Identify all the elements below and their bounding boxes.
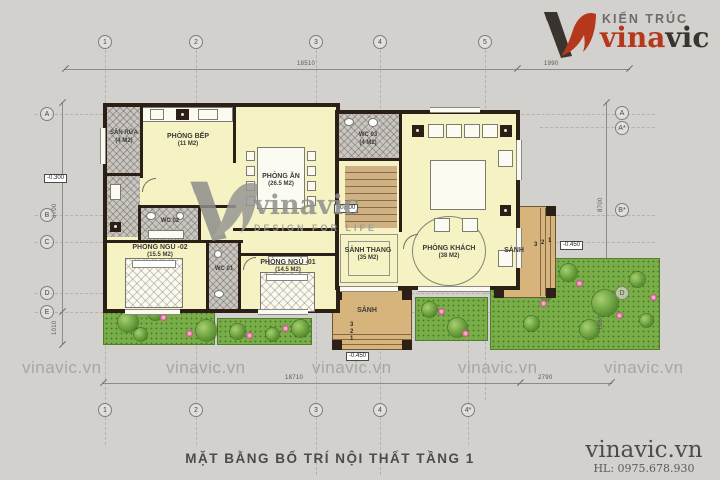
- flower-icon: [282, 325, 289, 332]
- drawing-title: MẶT BẰNG BỐ TRÍ NỘI THẤT TẦNG 1: [130, 451, 530, 466]
- side-table: [500, 205, 511, 216]
- grid-bubble-left-C: C: [40, 235, 54, 249]
- watermark-tile: vinavic.vn: [166, 358, 246, 378]
- room-name: SẢNH THANG: [345, 247, 392, 254]
- step-number: 1: [548, 238, 551, 244]
- pillow: [132, 260, 176, 268]
- sofa-seat: [464, 124, 480, 138]
- column-pier: [546, 288, 556, 298]
- vinavic-logo: KIẾN TRÚC vinavic: [540, 4, 718, 62]
- room-name: PHÒNG KHÁCH: [423, 245, 476, 252]
- sink-icon: [344, 118, 354, 126]
- wardrobe: [148, 230, 184, 239]
- column-pier: [546, 206, 556, 216]
- window: [430, 107, 480, 113]
- watermark-tile: vinavic.vn: [22, 358, 102, 378]
- room-name: PHÒNG ĂN: [262, 173, 300, 180]
- side-table: [412, 125, 424, 137]
- dim-bottom-right: 2790: [538, 375, 553, 381]
- sink-icon: [176, 109, 189, 120]
- dim-left-lower: 1010: [52, 320, 58, 335]
- room-label-bep: PHÒNG BẾP (11 M2): [150, 132, 226, 149]
- grid-bubble-bottom-2: 2: [189, 403, 203, 417]
- room-label-wc02: WC 02: [150, 218, 190, 226]
- room-label-ngu01: PHÒNG NGỦ -01 (14.5 M2): [246, 258, 330, 275]
- flower-icon: [246, 332, 253, 339]
- chair-icon: [246, 151, 255, 161]
- flower-icon: [186, 330, 193, 337]
- room-name: SẢNH: [504, 247, 524, 254]
- step-number: 3: [350, 322, 353, 328]
- watermark-text: vinavic DESIGN FOR LIFE: [254, 192, 377, 233]
- sink-icon: [110, 222, 121, 232]
- watermark-tile: vinavic.vn: [312, 358, 392, 378]
- grid-bubble-right-As: A*: [615, 121, 629, 135]
- vinavic-logo-glyph: [542, 8, 598, 60]
- room-area: (38 M2): [410, 253, 488, 261]
- column-pier: [402, 340, 412, 350]
- watermark-logo: [188, 176, 260, 249]
- dim-tick: [626, 65, 633, 72]
- column-pier: [332, 340, 342, 350]
- logo-wordmark-red: vina: [600, 21, 665, 54]
- room-area: (11 M2): [150, 141, 226, 149]
- window: [125, 309, 180, 315]
- room-label-sanh-side: SẢNH: [496, 246, 532, 255]
- wall: [138, 205, 141, 243]
- grid-bubble-top-4: 4: [373, 35, 387, 49]
- grid-bubble-top-3: 3: [309, 35, 323, 49]
- dim-right-lower: 1660: [598, 315, 604, 330]
- plant-icon: [560, 264, 577, 281]
- toilet-icon: [368, 118, 378, 127]
- room-label-wc01: WC 01: [206, 266, 242, 274]
- fridge-icon: [198, 109, 218, 120]
- flower-icon: [462, 330, 469, 337]
- armchair: [462, 218, 478, 232]
- vinavic-logo-glyph-gray: [188, 176, 260, 244]
- front-porch-steps: [333, 333, 411, 349]
- dim-right-main: 8700: [598, 197, 604, 212]
- dim-top-main: 18510: [297, 61, 315, 67]
- grid-bubble-top-1: 1: [98, 35, 112, 49]
- sofa-seat: [428, 124, 444, 138]
- dim-bottom-main: 18710: [285, 375, 303, 381]
- footer-site: vinavic.vn: [570, 437, 718, 463]
- step-number: 2: [541, 240, 544, 246]
- wall: [238, 240, 241, 313]
- room-area: (4 M2): [104, 138, 144, 146]
- wall: [206, 240, 209, 313]
- level-marker-side: -0.450: [560, 241, 583, 250]
- wall: [339, 158, 401, 161]
- room-label-wc03: WC 03 (4 M2): [348, 132, 388, 148]
- flower-icon: [438, 308, 445, 315]
- grid-bubble-top-2: 2: [189, 35, 203, 49]
- plant-icon: [134, 328, 147, 341]
- step-number: 3: [534, 242, 537, 248]
- flower-icon: [540, 300, 547, 307]
- logo-wordmark-dark: vic: [665, 21, 709, 54]
- chair-icon: [307, 151, 316, 161]
- plant-icon: [230, 324, 245, 339]
- wall: [233, 103, 236, 163]
- room-name: SẢNH: [357, 307, 377, 314]
- room-name: WC 03: [359, 132, 377, 138]
- sink-icon: [214, 250, 222, 258]
- pillow: [266, 274, 308, 281]
- dim-line-top: [65, 69, 630, 70]
- wall: [240, 253, 338, 256]
- grid-bubble-bottom-4: 4: [373, 403, 387, 417]
- grid-line-4s: [468, 330, 469, 445]
- watermark-slogan: DESIGN FOR LIFE: [254, 223, 377, 233]
- logo-wordmark: vinavic: [600, 24, 709, 52]
- room-area: (4 M2): [348, 140, 388, 148]
- room-name: PHÒNG NGỦ -01: [260, 259, 315, 266]
- dim-tick: [59, 341, 66, 348]
- grid-bubble-right-A: A: [615, 106, 629, 120]
- room-name: PHÒNG BẾP: [167, 133, 209, 140]
- washer-icon: [110, 184, 121, 200]
- plant-icon: [266, 328, 279, 341]
- room-label-sanh-thang: SẢNH THANG (35 M2): [328, 246, 408, 263]
- window-door-band: [418, 286, 490, 292]
- plant-icon: [292, 320, 309, 337]
- grid-bubble-left-B: B: [40, 208, 54, 222]
- grid-bubble-bottom-3: 3: [309, 403, 323, 417]
- wall: [107, 173, 140, 176]
- plant-icon: [524, 316, 539, 331]
- armchair: [498, 150, 513, 167]
- cooktop-icon: [150, 109, 164, 120]
- footer-hotline: HL: 0975.678.930: [570, 462, 718, 475]
- side-table: [500, 125, 512, 137]
- room-name: WC 01: [215, 266, 233, 272]
- toilet-icon: [214, 290, 224, 298]
- room-name: PHÒNG NGỦ -02: [132, 244, 187, 251]
- flower-icon: [160, 314, 167, 321]
- side-porch-steps: [536, 208, 554, 296]
- room-label-sanh-front: SẢNH: [340, 306, 394, 315]
- watermark-tile: vinavic.vn: [604, 358, 684, 378]
- room-name: SÂN RỬA: [110, 130, 138, 136]
- room-label-san-rua: SÂN RỬA (4 M2): [104, 130, 144, 146]
- grid-bubble-left-E: E: [40, 305, 54, 319]
- plant-icon: [422, 302, 437, 317]
- grid-bubble-bottom-1: 1: [98, 403, 112, 417]
- watermark-brand: vinavic: [254, 192, 377, 219]
- grid-bubble-left-A: A: [40, 107, 54, 121]
- step-number: 2: [350, 329, 353, 335]
- room-area: (35 M2): [328, 255, 408, 263]
- plant-icon: [640, 314, 653, 327]
- wall: [399, 110, 402, 232]
- grid-bubble-right-Bs: B*: [615, 203, 629, 217]
- flower-icon: [616, 312, 623, 319]
- grid-bubble-bottom-4s: 4*: [461, 403, 475, 417]
- plant-icon: [580, 320, 599, 339]
- sofa-seat: [482, 124, 498, 138]
- coffee-table: [430, 160, 486, 210]
- window-door-band: [340, 286, 398, 292]
- sofa-seat: [446, 124, 462, 138]
- grid-bubble-top-5: 5: [478, 35, 492, 49]
- grid-bubble-left-D: D: [40, 286, 54, 300]
- floor-plan-sheet: 18510 1990 18710 2790 8700 1010 8700 166…: [0, 0, 720, 480]
- room-area: (15.5 M2): [118, 252, 202, 260]
- column-pier: [402, 290, 412, 300]
- room-label-khach: PHÒNG KHÁCH (38 M2): [410, 244, 488, 261]
- window: [516, 140, 522, 180]
- dim-line-bottom: [103, 383, 612, 384]
- watermark-tile: vinavic.vn: [458, 358, 538, 378]
- level-marker-entry: -0.300: [44, 174, 67, 183]
- room-name: WC 02: [161, 218, 179, 224]
- armchair: [434, 218, 450, 232]
- grid-bubble-right-D: D: [615, 286, 629, 300]
- plant-icon: [630, 272, 645, 287]
- dim-tick: [608, 379, 615, 386]
- grid-line-As: [540, 127, 655, 128]
- plant-icon: [196, 320, 217, 341]
- room-area: (14.5 M2): [246, 267, 330, 275]
- flower-icon: [576, 280, 583, 287]
- window: [258, 309, 308, 315]
- step-number: 1: [350, 336, 353, 342]
- flower-icon: [650, 294, 657, 301]
